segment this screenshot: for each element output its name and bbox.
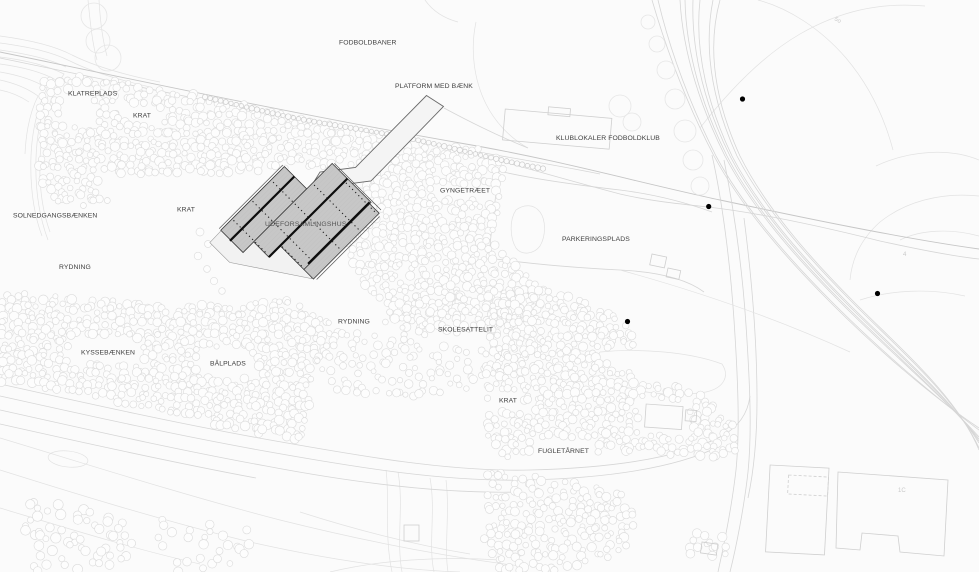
svg-text:GYNGETRÆET: GYNGETRÆET xyxy=(440,188,490,195)
svg-text:FUGLETÅRNET: FUGLETÅRNET xyxy=(538,446,589,455)
svg-text:PLATFORM MED BÆNK: PLATFORM MED BÆNK xyxy=(395,83,473,90)
svg-text:FODBOLDBANER: FODBOLDBANER xyxy=(339,40,396,47)
svg-text:SOLNEDGANGSBÆNKEN: SOLNEDGANGSBÆNKEN xyxy=(13,213,97,220)
svg-text:RYDNING: RYDNING xyxy=(59,264,91,271)
svg-text:BÅLPLADS: BÅLPLADS xyxy=(210,359,246,368)
svg-text:SKOLESATTELIT: SKOLESATTELIT xyxy=(438,327,493,334)
svg-text:KRAT: KRAT xyxy=(133,113,151,120)
svg-text:KRAT: KRAT xyxy=(499,398,517,405)
svg-text:UDEFORSAMLINGSHUS: UDEFORSAMLINGSHUS xyxy=(265,221,347,228)
svg-text:KYSSEBÆNKEN: KYSSEBÆNKEN xyxy=(81,350,135,357)
svg-text:KLUBLOKALER FODBOLDKLUB: KLUBLOKALER FODBOLDKLUB xyxy=(556,135,660,142)
svg-text:PARKERINGSPLADS: PARKERINGSPLADS xyxy=(562,236,630,243)
svg-text:KRAT: KRAT xyxy=(177,207,195,214)
svg-text:RYDNING: RYDNING xyxy=(338,319,370,326)
svg-text:KLATREPLADS: KLATREPLADS xyxy=(68,91,118,98)
svg-text:1C: 1C xyxy=(898,488,906,494)
